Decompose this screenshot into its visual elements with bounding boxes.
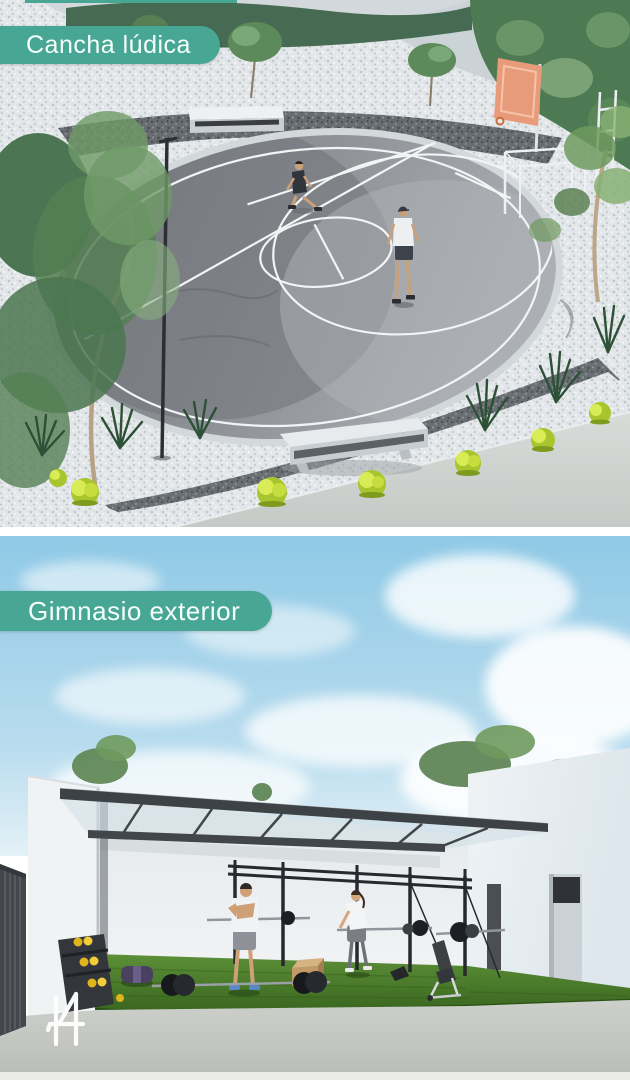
transom-window <box>553 877 580 903</box>
gym-label: Gimnasio exterior <box>28 596 240 627</box>
gym-bag <box>121 966 153 987</box>
court-label-badge: Cancha lúdica <box>0 26 220 64</box>
service-door <box>487 884 501 970</box>
court-label: Cancha lúdica <box>26 31 191 60</box>
gimnasio-exterior-render: Gimnasio exterior <box>0 536 630 1080</box>
cancha-ludica-render: Cancha lúdica <box>0 0 630 527</box>
basketball-court-illustration <box>0 0 630 527</box>
bottom-border <box>0 1072 630 1080</box>
panel-divider <box>0 527 630 536</box>
fence <box>0 864 26 1036</box>
right-wing-wall <box>468 748 630 1006</box>
gym-label-badge: Gimnasio exterior <box>0 591 272 631</box>
concrete-floor <box>0 1000 630 1080</box>
brochure-page: Cancha lúdica <box>0 0 630 1080</box>
doorway <box>549 874 582 982</box>
bench-top <box>188 106 284 133</box>
top-teal-line <box>25 0 237 3</box>
